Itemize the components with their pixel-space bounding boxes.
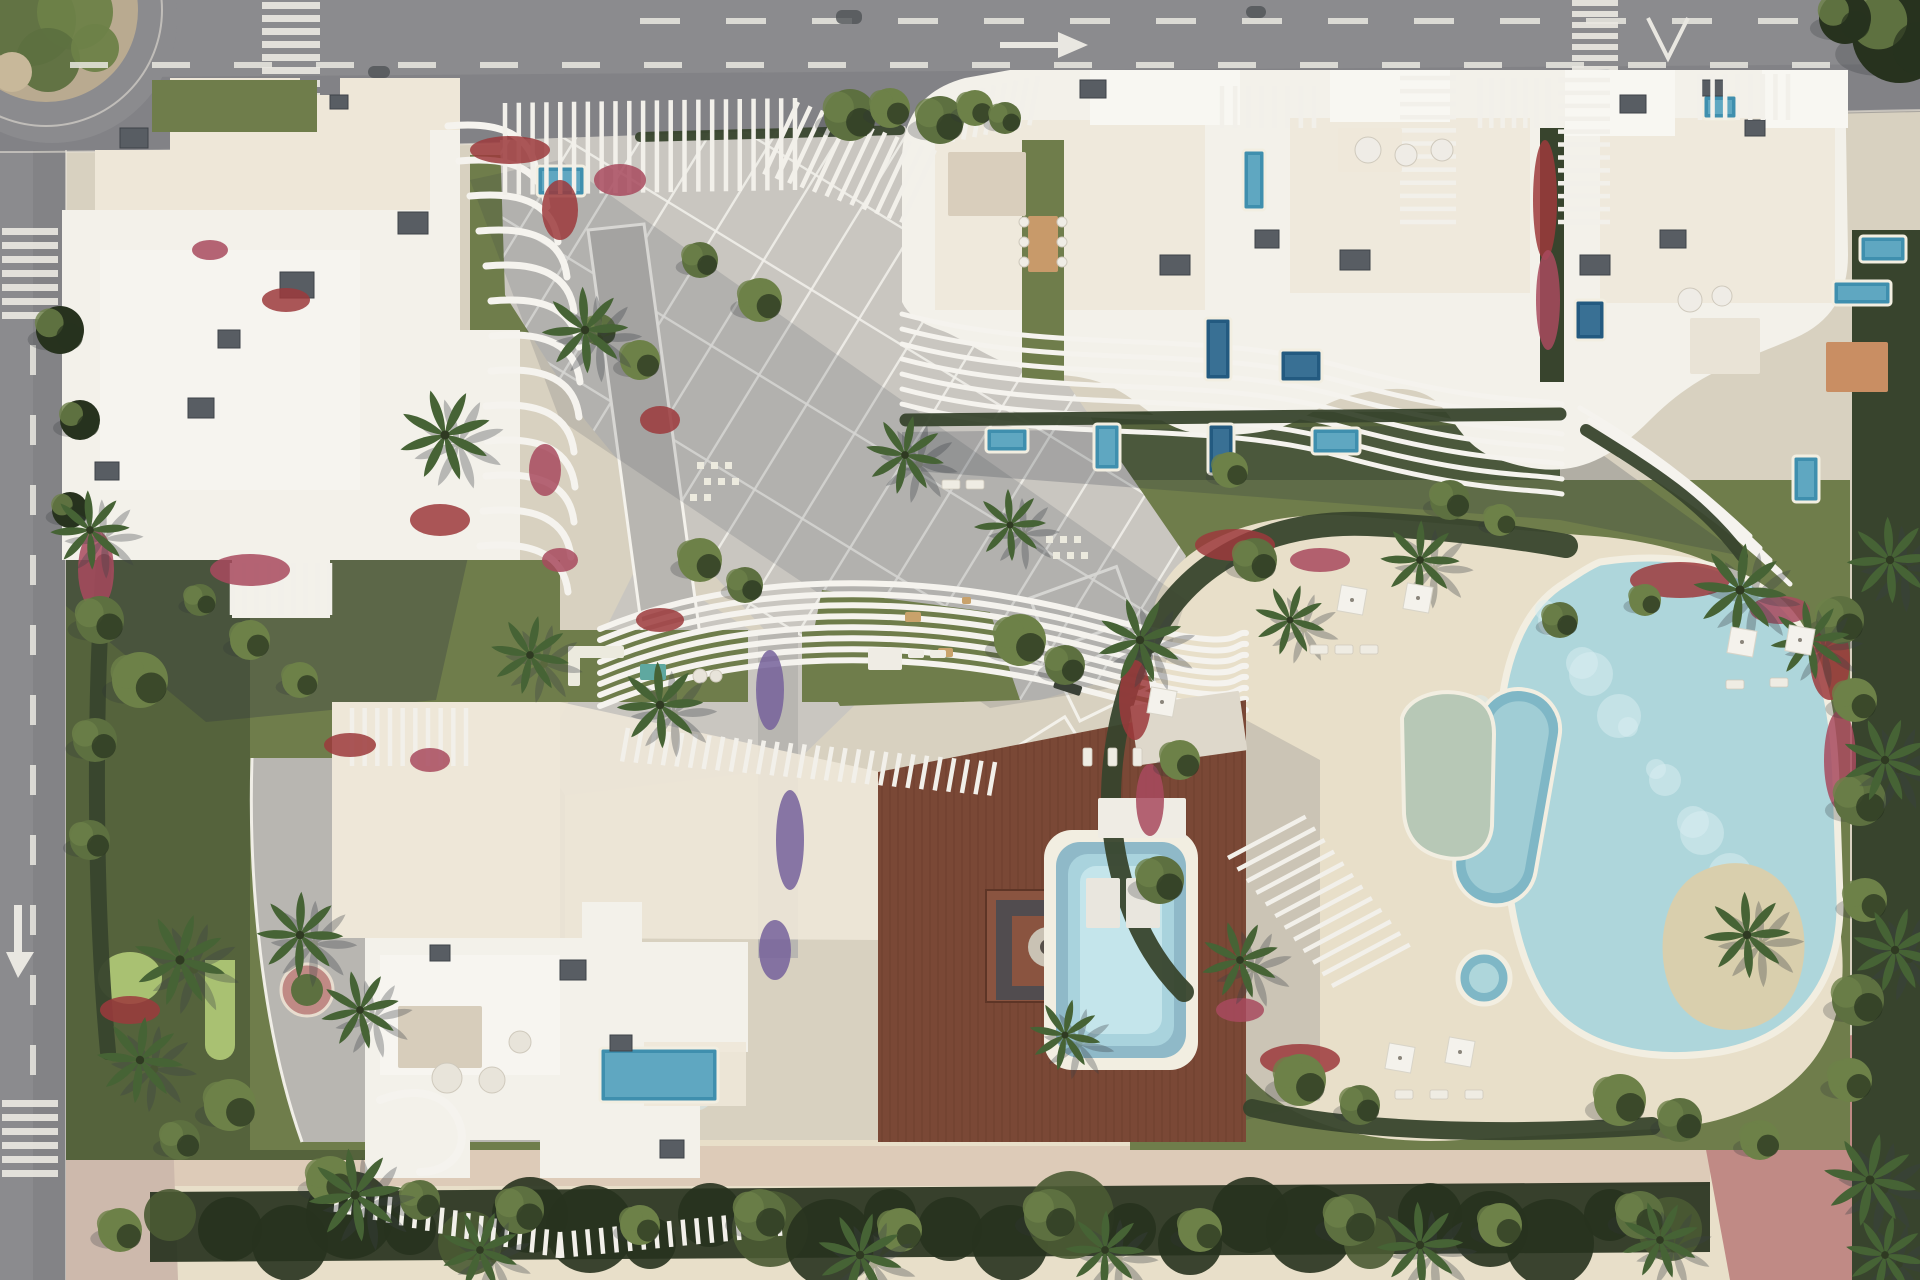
pergola-slat [560,1232,562,1258]
round-chair [1057,217,1067,227]
paver-stone [704,494,711,501]
lane-dash [1628,62,1666,68]
tree-canopy [742,580,762,600]
flower-bed [1536,250,1560,350]
round-chair [1355,137,1381,163]
scene-svg [0,0,1920,1280]
hedgerow [906,414,1560,420]
zebra-stripe [2,270,58,277]
zebra-stripe [262,15,320,22]
rooftop-unit [95,462,119,480]
zebra-stripe [2,228,58,235]
flower-bed [100,996,160,1024]
pergola-slat [440,1208,442,1234]
zebra-stripe [1572,11,1618,17]
flower-bed [1290,548,1350,572]
tree-canopy [1643,596,1661,614]
tree-canopy [1197,1224,1221,1248]
zebra-stripe [262,2,320,9]
zebra-stripe [1572,44,1618,50]
pergola-slat [453,1210,455,1236]
building-a-roof-garden [152,80,317,132]
lane-dash [1242,18,1282,24]
sun-lounger [1726,680,1744,689]
lane-dash [984,18,1024,24]
zebra-stripe [262,67,320,74]
lane-dash [640,18,680,24]
pool-highlight [605,1053,713,1097]
lane-dash [1070,18,1110,24]
furniture-item [908,650,924,658]
lane-dash [1218,62,1256,68]
zebra-stripe [2,1100,58,1107]
lane-dash [808,62,846,68]
planter-tree [291,974,323,1006]
pool-highlight [1838,286,1886,300]
furniture-item [398,1006,482,1068]
lane-dash [726,18,766,24]
round-chair [509,1031,531,1053]
tree-canopy [1177,755,1199,777]
tree-canopy [177,1135,199,1157]
water-highlight [1618,717,1638,737]
tree-canopy [1227,465,1247,485]
zebra-stripe [2,1142,58,1149]
tree-canopy [136,672,167,703]
lane-dash [898,18,938,24]
hedge-clump [198,1197,262,1261]
furniture-item [1826,342,1888,392]
tree-canopy [92,734,116,758]
rooftop-unit [1745,120,1765,136]
rooftop-unit [1660,230,1686,248]
pergola-slat [545,1229,547,1255]
round-chair [1395,144,1417,166]
lane-dash [30,975,36,1005]
rooftop-unit [430,945,450,961]
zebra-stripe [2,256,58,263]
rooftop-unit [1255,230,1279,248]
tree-canopy [1847,1074,1871,1098]
round-chair [693,669,707,683]
furniture-item [1086,878,1120,928]
round-chair [1057,257,1067,267]
paver-stone [1060,536,1067,543]
rooftop-unit [1080,80,1106,98]
tree-canopy [1046,1208,1075,1237]
zebra-stripe [2,242,58,249]
lane-dash [1054,62,1092,68]
tree-canopy [1757,1135,1779,1157]
water-highlight [1649,764,1681,796]
rooftop-unit [1580,255,1610,275]
lane-dash [726,62,764,68]
furniture-item [948,152,1026,216]
rooftop-unit [610,1035,632,1051]
platform-sofa-west [996,916,1012,986]
tree-canopy [637,1220,659,1242]
tree-canopy [1252,554,1276,578]
water-highlight [1680,811,1724,855]
sun-lounger [1430,1090,1448,1099]
rooftop-unit [330,95,348,109]
tree-canopy [117,1224,141,1248]
tree-canopy [417,1195,439,1217]
sun-lounger [1083,748,1092,766]
pool-highlight [1317,433,1355,449]
paver-stone [1074,536,1081,543]
lane-dash [1328,18,1368,24]
sun-lounger [1108,748,1117,766]
flower-bed [542,180,578,240]
zebra-stripe [1572,33,1618,39]
round-chair [432,1063,462,1093]
paver-stone [711,462,718,469]
pool-highlight [991,433,1023,447]
furniture-item [1028,216,1058,272]
hedge-clump [918,1197,982,1261]
furniture-item [930,650,946,658]
zebra-stripe [262,54,320,61]
rooftop-unit [398,212,428,234]
flower-bed [776,790,804,890]
furniture-item [962,597,971,604]
flower-bed [324,733,376,757]
lane-dash [1710,62,1748,68]
round-chair [1431,139,1453,161]
pool-highlight [1865,241,1901,257]
flower-bed [210,554,290,586]
furniture-item [905,612,921,622]
flower-bed [756,650,784,730]
leisure-pool [1402,692,1494,859]
pergola-slat [601,1228,603,1254]
paver-stone [690,494,697,501]
flower-bed [410,504,470,536]
rooftop-unit [1160,255,1190,275]
pool-highlight [1580,305,1600,335]
tree-canopy [1862,894,1886,918]
lane-dash [70,62,108,68]
flower-bed [262,288,310,312]
lane-dash [1758,18,1798,24]
lane-dash [30,695,36,725]
zebra-stripe [1572,55,1618,61]
paver-stone [704,478,711,485]
round-chair [479,1067,505,1093]
rooftop-unit [218,330,240,348]
tree-canopy [1852,694,1876,718]
tree-canopy [1357,1100,1379,1122]
lane-dash [972,62,1010,68]
flower-bed [192,240,228,260]
lane-dash [30,345,36,375]
zebra-stripe [262,41,320,48]
zebra-stripe [262,28,320,35]
parasol-pole [1458,1050,1462,1054]
round-chair [1712,286,1732,306]
lane-dash [480,62,518,68]
rooftop-unit [1620,95,1646,113]
tree-canopy [56,324,82,350]
tree-canopy [297,675,317,695]
paver-stone [1081,552,1088,559]
tree-canopy [77,415,99,437]
tree-canopy [1557,615,1577,635]
lane-dash [30,415,36,445]
sun-lounger [1335,645,1353,654]
tree-canopy [1296,1073,1325,1102]
sun-lounger [1770,678,1788,687]
rooftop-unit [560,960,586,980]
parasol-pole [1798,638,1802,642]
tree-canopy [1841,11,1870,40]
tree-canopy [1346,1213,1375,1242]
tree-canopy [247,635,269,657]
lane-dash [316,62,354,68]
tree-canopy [637,355,659,377]
lane-dash [30,555,36,585]
lane-dash [30,765,36,795]
sun-lounger [966,480,984,489]
zebra-stripe [1572,0,1618,6]
pergola-slat [574,1231,576,1257]
zebra-stripe [2,1170,58,1177]
round-chair [1019,217,1029,227]
pergola-slat [587,1229,589,1255]
lane-dash [644,62,682,68]
lane-dash [30,905,36,935]
parasol-pole [1740,640,1744,644]
lane-dash [1500,18,1540,24]
lane-dash [1672,18,1712,24]
tree-canopy [756,1208,785,1237]
building-a-roof-slab [100,250,360,490]
zebra-stripe [2,1114,58,1121]
lane-dash [1136,62,1174,68]
lane-dash [1156,18,1196,24]
zebra-stripe [2,298,58,305]
pool-highlight [1248,155,1260,205]
rooftop-unit [1340,250,1370,270]
paver-stone [718,478,725,485]
tree-canopy [1677,1114,1701,1138]
pool-highlight [1210,323,1226,375]
pergola-slat [683,1220,685,1246]
tree-canopy [198,596,216,614]
tree-canopy [1156,874,1182,900]
zebra-stripe [2,284,58,291]
zebra-stripe [1572,22,1618,28]
sun-lounger [1133,748,1142,766]
zebra-stripe [2,1156,58,1163]
paver-stone [1053,552,1060,559]
lane-dash [1792,62,1830,68]
tree-canopy [1497,1219,1521,1243]
lane-dash [1382,62,1420,68]
flower-bed [636,608,684,632]
paver-stone [1067,552,1074,559]
tree-canopy [516,1204,542,1230]
paver-stone [697,462,704,469]
building-b-slab-1 [1090,70,1240,125]
round-chair [1019,257,1029,267]
flower-bed [1533,140,1557,260]
parasol-pole [1416,596,1420,600]
pergola-slat [669,1221,671,1247]
vehicle-blob [836,10,862,24]
tree-canopy [697,255,717,275]
tree-canopy [226,1098,255,1127]
sun-lounger [1360,645,1378,654]
paver-stone [1046,536,1053,543]
tree-canopy [757,294,781,318]
lane-dash [1414,18,1454,24]
rooftop-unit [660,1140,684,1158]
parasol-pole [1398,1056,1402,1060]
flower-bed [410,748,450,772]
pergola-slat [724,1216,726,1242]
tree-canopy [887,103,909,125]
flower-bed [759,920,791,980]
tree-canopy [1616,1093,1645,1122]
lane-dash [30,1045,36,1075]
pergola-slat [696,1218,698,1244]
aerial-render [0,0,1920,1280]
tree-canopy [1016,633,1045,662]
sun-lounger [1310,645,1328,654]
lane-dash [30,835,36,865]
flower-bed [529,444,561,496]
pergola-slat [710,1217,712,1243]
lane-dash [30,485,36,515]
vehicle-blob [1246,6,1266,18]
vehicle-blob [368,66,390,78]
round-chair [1019,237,1029,247]
flower-bed [1216,998,1264,1022]
flower-bed [640,406,680,434]
sun-lounger [942,480,960,489]
flower-bed [542,548,578,572]
round-chair [710,670,722,682]
rooftop-unit [188,398,214,418]
lane-dash [1300,62,1338,68]
tree-canopy [87,835,109,857]
paver-stone [725,462,732,469]
building-b-terrace-east [1600,118,1835,303]
lane-dash [890,62,928,68]
tree-canopy [1498,516,1516,534]
tree-canopy [1003,114,1021,132]
round-chair [1057,237,1067,247]
lane-dash [30,625,36,655]
lane-dash [152,62,190,68]
lane-dash [562,62,600,68]
lane-dash [1464,62,1502,68]
paver-stone [732,478,739,485]
spa-pool-center [1469,963,1499,993]
tree-canopy [1447,495,1469,517]
sun-lounger [1395,1090,1413,1099]
pool-highlight [1285,355,1317,377]
pool-highlight [1099,429,1115,465]
zebra-stripe [2,1128,58,1135]
flower-bed [594,164,646,196]
furniture-item [1690,318,1760,374]
sun-lounger [1465,1090,1483,1099]
rooftop-unit [120,128,148,148]
round-chair [1678,288,1702,312]
hedge-clump [144,1189,196,1241]
water-highlight [1569,652,1613,696]
parasol-pole [1160,700,1164,704]
lane-dash [398,62,436,68]
tree-canopy [1854,993,1883,1022]
tree-canopy [697,554,721,578]
pool-highlight [1798,461,1814,497]
parasol-pole [1350,598,1354,602]
tree-canopy [96,614,122,640]
tree-canopy [1062,660,1084,682]
flower-bed [470,136,550,164]
furniture-item [868,648,902,670]
